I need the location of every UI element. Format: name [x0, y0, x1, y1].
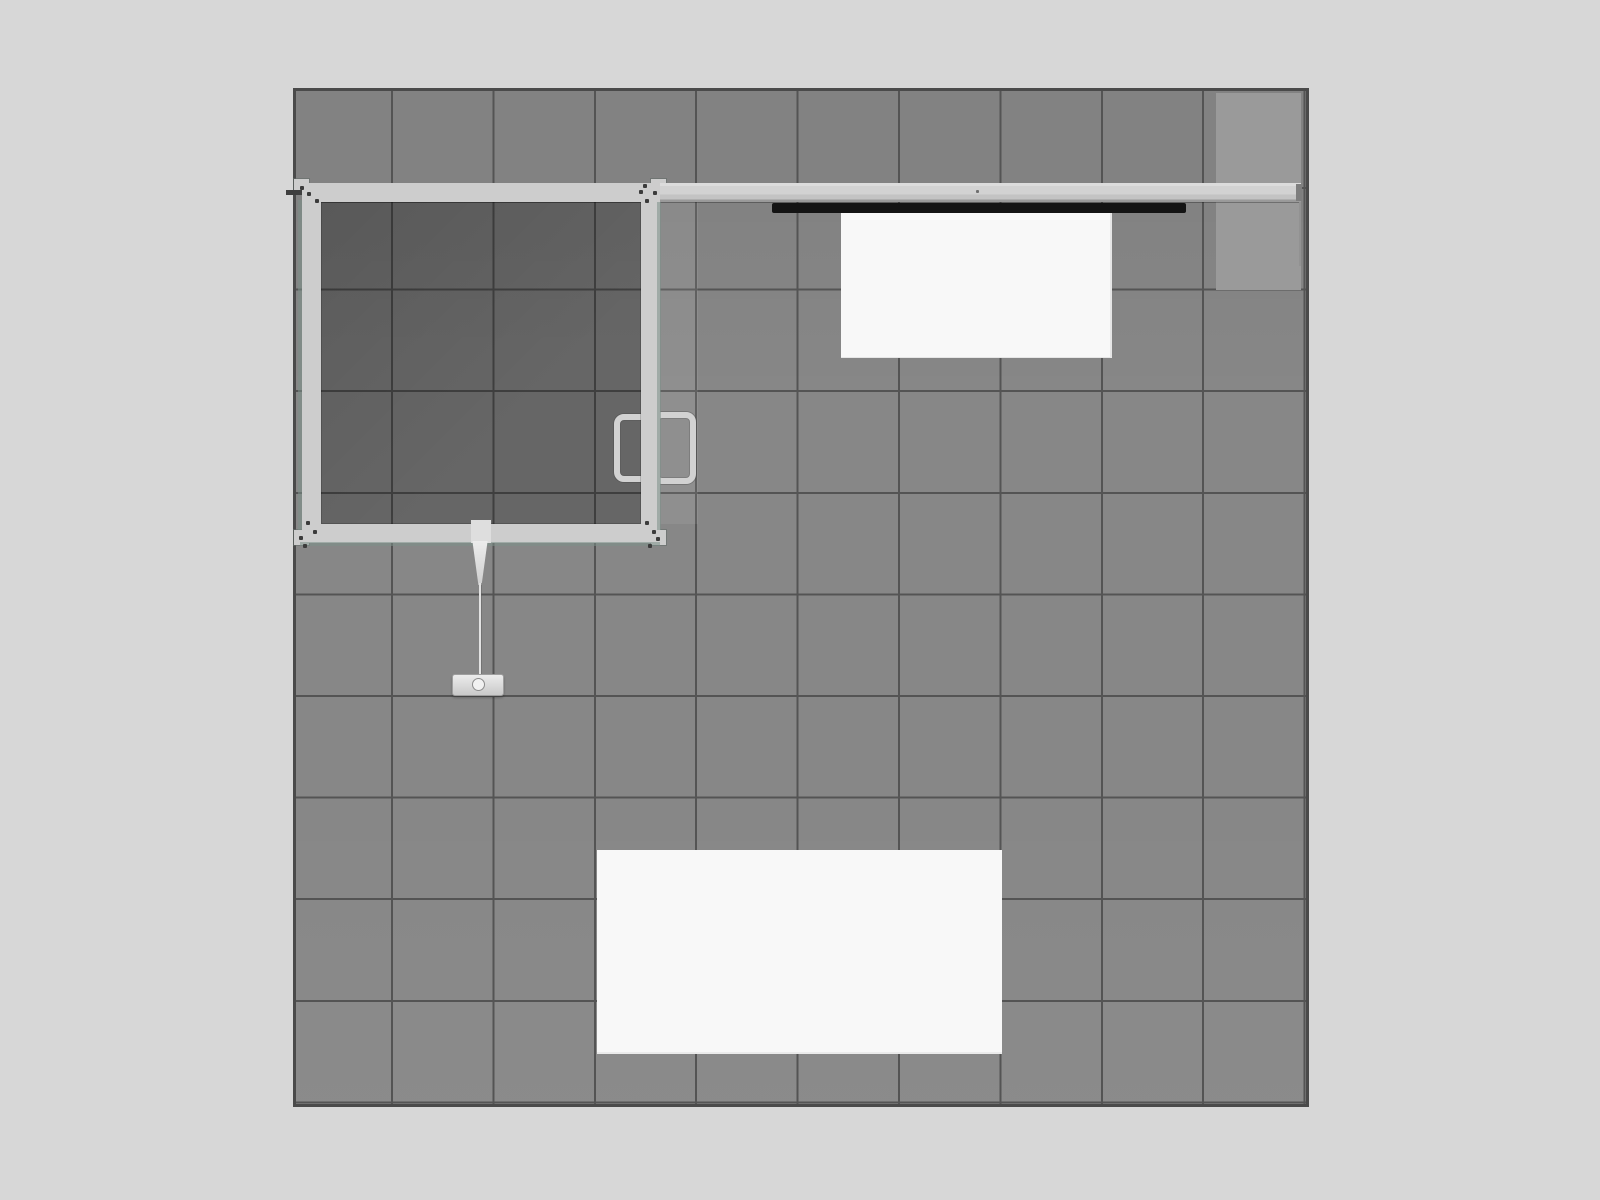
screw-dot — [639, 190, 643, 194]
light-cord — [479, 583, 481, 676]
screw-dot — [315, 199, 319, 203]
screw-dot — [643, 184, 647, 188]
light-mount — [471, 520, 491, 543]
screw-dot — [313, 530, 317, 534]
screw-dot — [306, 521, 310, 525]
screw-dot — [656, 537, 660, 541]
monitor-bar — [772, 203, 1186, 213]
frame-edge-left — [298, 200, 302, 530]
screw-dot — [300, 186, 304, 190]
beam-end-cap — [1296, 184, 1302, 201]
screw-dot — [645, 199, 649, 203]
light-knob — [472, 678, 485, 691]
booth-table — [597, 850, 1002, 1054]
closet-frame — [302, 183, 660, 543]
screw-dot — [645, 521, 649, 525]
hanging-counter — [841, 213, 1112, 358]
screw-dot — [299, 536, 303, 540]
frame-edge-right — [657, 202, 661, 530]
screw-dot — [652, 530, 656, 534]
booth-top-view — [0, 0, 1600, 1200]
screw-dot — [648, 544, 652, 548]
wall-stub — [1299, 202, 1301, 266]
screw-dot — [307, 192, 311, 196]
screw-dot — [303, 544, 307, 548]
beam-center-screw — [976, 190, 979, 193]
left-wall-tick — [286, 190, 302, 195]
screw-dot — [653, 191, 657, 195]
